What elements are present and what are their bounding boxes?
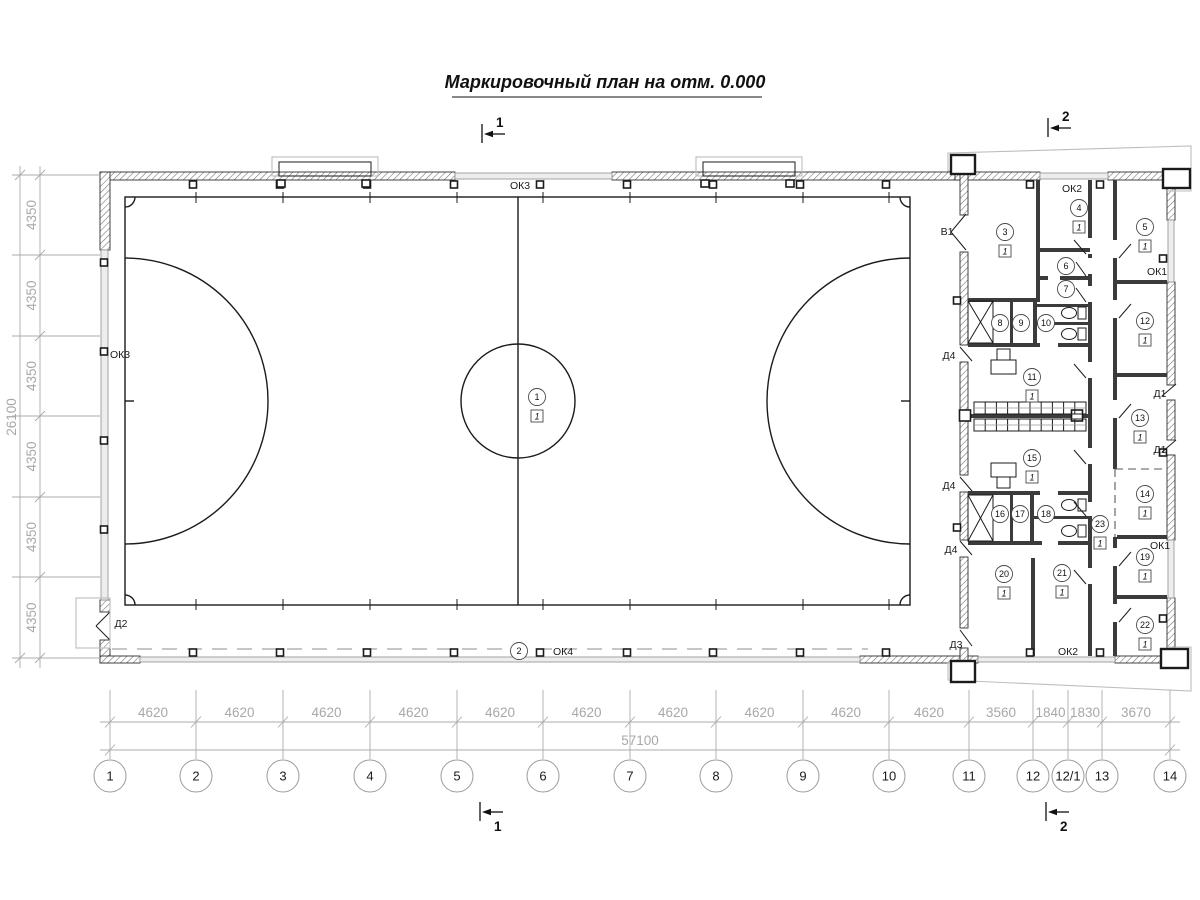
column bbox=[451, 649, 458, 656]
grid-bubble-label: 11 bbox=[962, 769, 976, 784]
wall-segment bbox=[100, 172, 110, 250]
section-arrowhead bbox=[482, 809, 491, 815]
grid-bubble-10: 10 bbox=[873, 760, 905, 792]
floor-type: 1 bbox=[1142, 640, 1147, 650]
dim-label: 4620 bbox=[224, 705, 254, 720]
section-number: 1 bbox=[496, 115, 504, 130]
grid-bubble-label: 12 bbox=[1026, 769, 1040, 784]
section-mark-1: 1 bbox=[482, 115, 505, 143]
toilet-icon bbox=[1062, 500, 1077, 511]
grid-bubble-label: 3 bbox=[279, 769, 286, 784]
door-leaf bbox=[960, 347, 972, 361]
wall-segment bbox=[960, 492, 968, 540]
porch-slab bbox=[951, 155, 975, 174]
column bbox=[624, 181, 631, 188]
desk bbox=[991, 463, 1016, 477]
porch-slab bbox=[1163, 169, 1190, 188]
door-leaf bbox=[1074, 570, 1086, 584]
interior-wall bbox=[1088, 180, 1092, 238]
interior-wall bbox=[1113, 537, 1117, 548]
section-number: 2 bbox=[1062, 109, 1070, 124]
grid-bubble-label: 7 bbox=[626, 769, 633, 784]
interior-wall bbox=[1117, 373, 1167, 377]
door-leaf bbox=[96, 626, 110, 640]
dim-label: 4350 bbox=[24, 361, 39, 391]
wall-segment bbox=[100, 600, 110, 612]
door-leaf bbox=[960, 477, 972, 491]
window-band bbox=[1040, 173, 1108, 179]
room-number: 8 bbox=[997, 318, 1002, 328]
dim-label: 4620 bbox=[914, 705, 944, 720]
interior-wall bbox=[1030, 495, 1034, 541]
toilet-icon bbox=[1078, 525, 1086, 537]
room-marker-6: 6 bbox=[1058, 258, 1075, 275]
section-mark-2: 2 bbox=[1048, 109, 1071, 137]
grid-bubble-label: 5 bbox=[453, 769, 460, 784]
opening-label-ОК3: ОК3 bbox=[510, 180, 530, 192]
room-number: 9 bbox=[1018, 318, 1023, 328]
room-marker-4: 41 bbox=[1071, 200, 1088, 234]
futsal-field bbox=[125, 192, 910, 610]
column bbox=[101, 348, 108, 355]
canopy-post bbox=[277, 180, 285, 187]
room-marker-20: 201 bbox=[996, 566, 1013, 600]
section-number: 1 bbox=[494, 819, 502, 834]
column bbox=[190, 649, 197, 656]
room-marker-2: 2 bbox=[511, 643, 528, 660]
dimensions-bottom: 12345678910111212/1131446204620462046204… bbox=[94, 690, 1186, 792]
room-marker-11: 111 bbox=[1024, 369, 1041, 403]
dim-label: 4620 bbox=[744, 705, 774, 720]
room-marker-3: 31 bbox=[997, 224, 1014, 258]
column bbox=[364, 649, 371, 656]
column bbox=[954, 297, 961, 304]
column bbox=[101, 259, 108, 266]
canopy-post bbox=[701, 180, 709, 187]
floor-type: 1 bbox=[1142, 509, 1147, 519]
column bbox=[537, 649, 544, 656]
opening-label-Д2: Д2 bbox=[115, 618, 128, 630]
interior-wall bbox=[1036, 180, 1040, 302]
dim-label: 4620 bbox=[571, 705, 601, 720]
room-number: 6 bbox=[1063, 261, 1068, 271]
column bbox=[797, 649, 804, 656]
dim-label: 4350 bbox=[24, 200, 39, 230]
interior-wall bbox=[1113, 418, 1117, 469]
dim-label: 4350 bbox=[24, 441, 39, 471]
interior-wall bbox=[1088, 274, 1092, 286]
page-title: Маркировочный план на отм. 0.000 bbox=[445, 72, 766, 92]
opening-label-ОК2: ОК2 bbox=[1058, 646, 1078, 658]
interior-wall bbox=[1113, 180, 1117, 240]
dim-label: 1830 bbox=[1070, 705, 1100, 720]
column bbox=[537, 181, 544, 188]
room-number: 17 bbox=[1015, 509, 1025, 519]
toilet-icon bbox=[1078, 499, 1086, 511]
section-arrowhead bbox=[1050, 125, 1059, 131]
room-marker-22: 221 bbox=[1137, 617, 1154, 651]
grid-bubble-2: 2 bbox=[180, 760, 212, 792]
door-leaf bbox=[1074, 450, 1086, 464]
column bbox=[101, 526, 108, 533]
room-marker-5: 51 bbox=[1137, 219, 1154, 253]
room-number: 13 bbox=[1135, 413, 1145, 423]
room-number: 22 bbox=[1140, 620, 1150, 630]
grid-bubble-5: 5 bbox=[441, 760, 473, 792]
column bbox=[1097, 649, 1104, 656]
section-arrowhead bbox=[1048, 809, 1057, 815]
room-marker-1: 11 bbox=[529, 389, 546, 423]
room-number: 10 bbox=[1041, 318, 1051, 328]
dashed-lines bbox=[112, 469, 1167, 649]
room-marker-16: 16 bbox=[992, 506, 1009, 523]
grid-bubble-7: 7 bbox=[614, 760, 646, 792]
grid-bubble-label: 9 bbox=[799, 769, 806, 784]
dim-label: 4350 bbox=[24, 280, 39, 310]
room-number: 3 bbox=[1002, 227, 1007, 237]
column bbox=[954, 524, 961, 531]
room-marker-21: 211 bbox=[1054, 565, 1071, 599]
interior-wall bbox=[1088, 254, 1092, 258]
interior-wall bbox=[1038, 276, 1048, 280]
window-band bbox=[140, 657, 860, 662]
door-leaf bbox=[96, 612, 110, 626]
plan-geometry: 1123141516789101111211311411511617181912… bbox=[4, 109, 1191, 834]
door-leaf bbox=[1119, 404, 1131, 418]
floor-type: 1 bbox=[1001, 589, 1006, 599]
floor-type: 1 bbox=[1142, 242, 1147, 252]
grid-bubble-11: 11 bbox=[953, 760, 985, 792]
column bbox=[1160, 255, 1167, 262]
dim-label: 4350 bbox=[24, 522, 39, 552]
room-number: 1 bbox=[534, 392, 539, 402]
dim-total-label: 26100 bbox=[4, 398, 19, 436]
opening-label-ОК4: ОК4 bbox=[553, 646, 573, 658]
grid-bubble-1: 1 bbox=[94, 760, 126, 792]
floor-type: 1 bbox=[1002, 247, 1007, 257]
room-marker-19: 191 bbox=[1137, 549, 1154, 583]
column bbox=[277, 649, 284, 656]
interior-wall bbox=[1088, 302, 1092, 362]
interior-wall bbox=[1088, 378, 1092, 448]
section-mark-1: 1 bbox=[480, 802, 503, 834]
grid-bubble-label: 10 bbox=[882, 769, 896, 784]
section-arrowhead bbox=[484, 131, 493, 137]
desk bbox=[997, 477, 1010, 488]
wall-segment bbox=[1167, 400, 1175, 440]
interior-wall bbox=[1113, 318, 1117, 400]
room-marker-13: 131 bbox=[1132, 410, 1149, 444]
canopy-post bbox=[786, 180, 794, 187]
floor-type: 1 bbox=[1142, 336, 1147, 346]
shafts bbox=[968, 301, 993, 541]
wall-segment bbox=[100, 656, 140, 663]
door-leaves bbox=[96, 214, 1176, 646]
grid-bubble-label: 12/1 bbox=[1055, 769, 1080, 784]
dim-label: 1840 bbox=[1035, 705, 1065, 720]
column bbox=[1027, 649, 1034, 656]
column bbox=[1027, 181, 1034, 188]
toilet-icon bbox=[1078, 307, 1086, 319]
interior-wall bbox=[1060, 276, 1090, 280]
grid-bubble-label: 6 bbox=[539, 769, 546, 784]
room-marker-9: 9 bbox=[1013, 315, 1030, 332]
dim-label: 4620 bbox=[138, 705, 168, 720]
interior-wall bbox=[1088, 464, 1092, 502]
dim-label: 4620 bbox=[311, 705, 341, 720]
window-band bbox=[101, 250, 108, 600]
interior-wall bbox=[1113, 622, 1117, 656]
door-leaf bbox=[1119, 608, 1131, 622]
room-number: 12 bbox=[1140, 316, 1150, 326]
dim-label: 4620 bbox=[658, 705, 688, 720]
floor-type: 1 bbox=[534, 412, 539, 422]
opening-label-Д1: Д1 bbox=[1154, 444, 1167, 456]
column bbox=[190, 181, 197, 188]
room-marker-10: 10 bbox=[1038, 315, 1055, 332]
opening-label-Д4: Д4 bbox=[943, 480, 956, 492]
column bbox=[624, 649, 631, 656]
room-marker-23: 231 bbox=[1092, 516, 1109, 550]
grid-bubble-12/1: 12/1 bbox=[1052, 760, 1084, 792]
grid-bubble-label: 8 bbox=[712, 769, 719, 784]
floor-type: 1 bbox=[1142, 572, 1147, 582]
column bbox=[710, 181, 717, 188]
room-marker-8: 8 bbox=[992, 315, 1009, 332]
interior-wall bbox=[1113, 566, 1117, 604]
opening-label-Д3: Д3 bbox=[950, 639, 963, 651]
grid-bubble-label: 4 bbox=[366, 769, 373, 784]
dimensions-left: 43504350435043504350435026100 bbox=[4, 166, 100, 668]
grid-bubble-13: 13 bbox=[1086, 760, 1118, 792]
room-marker-14: 141 bbox=[1137, 486, 1154, 520]
floor-type: 1 bbox=[1029, 473, 1034, 483]
room-number: 7 bbox=[1063, 284, 1068, 294]
wall-segment bbox=[960, 172, 968, 215]
interior-wall bbox=[1117, 280, 1167, 284]
interior-wall bbox=[968, 491, 1040, 495]
opening-label-В1: В1 bbox=[941, 226, 954, 238]
penalty-arc-right bbox=[767, 258, 910, 544]
interior-wall bbox=[1058, 541, 1088, 545]
interior-wall bbox=[1031, 558, 1035, 656]
window-band bbox=[1168, 220, 1174, 282]
porch-slab bbox=[951, 661, 975, 682]
section-marks: 1122 bbox=[480, 109, 1071, 834]
dim-label: 4620 bbox=[485, 705, 515, 720]
interior-wall bbox=[968, 343, 1040, 347]
corner-arc bbox=[900, 595, 910, 605]
toilet-icon bbox=[1062, 329, 1077, 340]
room-number: 14 bbox=[1140, 489, 1150, 499]
canopy-post bbox=[362, 180, 370, 187]
grid-bubble-label: 14 bbox=[1163, 769, 1177, 784]
room-marker-7: 7 bbox=[1058, 281, 1075, 298]
floor-plan-sheet: Маркировочный план на отм. 0.000 1123141… bbox=[0, 0, 1200, 900]
grid-bubble-14: 14 bbox=[1154, 760, 1186, 792]
door-leaf bbox=[1119, 552, 1131, 566]
room-number: 5 bbox=[1142, 222, 1147, 232]
room-number: 11 bbox=[1027, 372, 1036, 382]
column bbox=[451, 181, 458, 188]
toilet-icon bbox=[1062, 308, 1077, 319]
interior-wall bbox=[1117, 535, 1167, 539]
floor-type: 1 bbox=[1076, 223, 1081, 233]
opening-label-Д1: Д1 bbox=[1154, 388, 1167, 400]
window-band bbox=[978, 657, 1115, 662]
floor-plan-canvas: Маркировочный план на отм. 0.000 1123141… bbox=[0, 0, 1200, 900]
room-number: 19 bbox=[1140, 552, 1150, 562]
interior-wall bbox=[968, 541, 1042, 545]
room-marker-15: 151 bbox=[1024, 450, 1041, 484]
room-number: 2 bbox=[516, 646, 521, 656]
grid-bubble-3: 3 bbox=[267, 760, 299, 792]
grid-bubble-8: 8 bbox=[700, 760, 732, 792]
interior-wall bbox=[1113, 258, 1117, 300]
room-markers: 1123141516789101111211311411511617181912… bbox=[511, 200, 1154, 660]
door-leaf bbox=[1119, 244, 1131, 258]
floor-type: 1 bbox=[1059, 588, 1064, 598]
interior-wall bbox=[1058, 343, 1090, 347]
door-leaf bbox=[1076, 288, 1086, 302]
grid-bubble-9: 9 bbox=[787, 760, 819, 792]
room-number: 4 bbox=[1076, 203, 1081, 213]
floor-type: 1 bbox=[1029, 392, 1034, 402]
door-leaf bbox=[1074, 364, 1086, 378]
sanitary-fixtures bbox=[1062, 307, 1087, 537]
porch-slab bbox=[1161, 649, 1188, 668]
window-band bbox=[455, 173, 612, 179]
dim-label: 4620 bbox=[831, 705, 861, 720]
column bbox=[101, 437, 108, 444]
floor-type: 1 bbox=[1097, 539, 1102, 549]
desk bbox=[997, 349, 1010, 360]
room-number: 20 bbox=[999, 569, 1009, 579]
room-marker-18: 18 bbox=[1038, 506, 1055, 523]
column bbox=[883, 181, 890, 188]
room-number: 15 bbox=[1027, 453, 1037, 463]
grid-bubble-4: 4 bbox=[354, 760, 386, 792]
corner-arc bbox=[125, 197, 135, 207]
opening-label-ОК3: ОК3 bbox=[110, 349, 130, 361]
grid-bubble-label: 1 bbox=[106, 769, 113, 784]
column bbox=[1097, 181, 1104, 188]
section-mark-2: 2 bbox=[1046, 802, 1069, 834]
penalty-arc-left bbox=[125, 258, 268, 544]
dim-label: 3560 bbox=[986, 705, 1016, 720]
wall-segment bbox=[1167, 455, 1175, 540]
toilet-icon bbox=[1062, 526, 1077, 537]
interior-wall bbox=[1058, 491, 1090, 495]
section-number: 2 bbox=[1060, 819, 1068, 834]
opening-label-Д4: Д4 bbox=[943, 350, 956, 362]
column bbox=[710, 649, 717, 656]
desk bbox=[991, 360, 1016, 374]
dim-label: 3670 bbox=[1121, 705, 1151, 720]
door-leaf bbox=[1119, 304, 1131, 318]
grid-bubble-label: 2 bbox=[192, 769, 199, 784]
room-marker-17: 17 bbox=[1012, 506, 1029, 523]
room-number: 18 bbox=[1041, 509, 1051, 519]
floor-type: 1 bbox=[1137, 433, 1142, 443]
door-leaf bbox=[1074, 502, 1086, 516]
grid-bubble-6: 6 bbox=[527, 760, 559, 792]
interior-wall bbox=[1033, 302, 1037, 345]
plan-title: Маркировочный план на отм. 0.000 bbox=[445, 72, 766, 97]
corner-arc bbox=[125, 595, 135, 605]
interior-wall bbox=[1117, 595, 1167, 599]
toilet-icon bbox=[1078, 328, 1086, 340]
dim-total-label: 57100 bbox=[621, 733, 659, 748]
wall-segment bbox=[1167, 282, 1175, 385]
column bbox=[797, 181, 804, 188]
wall-segment bbox=[960, 557, 968, 628]
dim-label: 4350 bbox=[24, 602, 39, 632]
interior-wall bbox=[1088, 584, 1092, 656]
opening-label-ОК2: ОК2 bbox=[1062, 183, 1082, 195]
grid-bubble-12: 12 bbox=[1017, 760, 1049, 792]
opening-label-Д4: Д4 bbox=[945, 544, 958, 556]
opening-label-ОК1: ОК1 bbox=[1147, 266, 1167, 278]
column bbox=[960, 410, 971, 421]
room-number: 23 bbox=[1095, 519, 1105, 529]
column bbox=[883, 649, 890, 656]
room-number: 21 bbox=[1057, 568, 1067, 578]
opening-label-ОК1: ОК1 bbox=[1150, 540, 1170, 552]
column bbox=[1160, 615, 1167, 622]
door-leaf bbox=[1076, 262, 1086, 276]
room-marker-12: 121 bbox=[1137, 313, 1154, 347]
room-number: 16 bbox=[995, 509, 1005, 519]
dim-label: 4620 bbox=[398, 705, 428, 720]
corner-arc bbox=[900, 197, 910, 207]
grid-bubble-label: 13 bbox=[1095, 769, 1109, 784]
